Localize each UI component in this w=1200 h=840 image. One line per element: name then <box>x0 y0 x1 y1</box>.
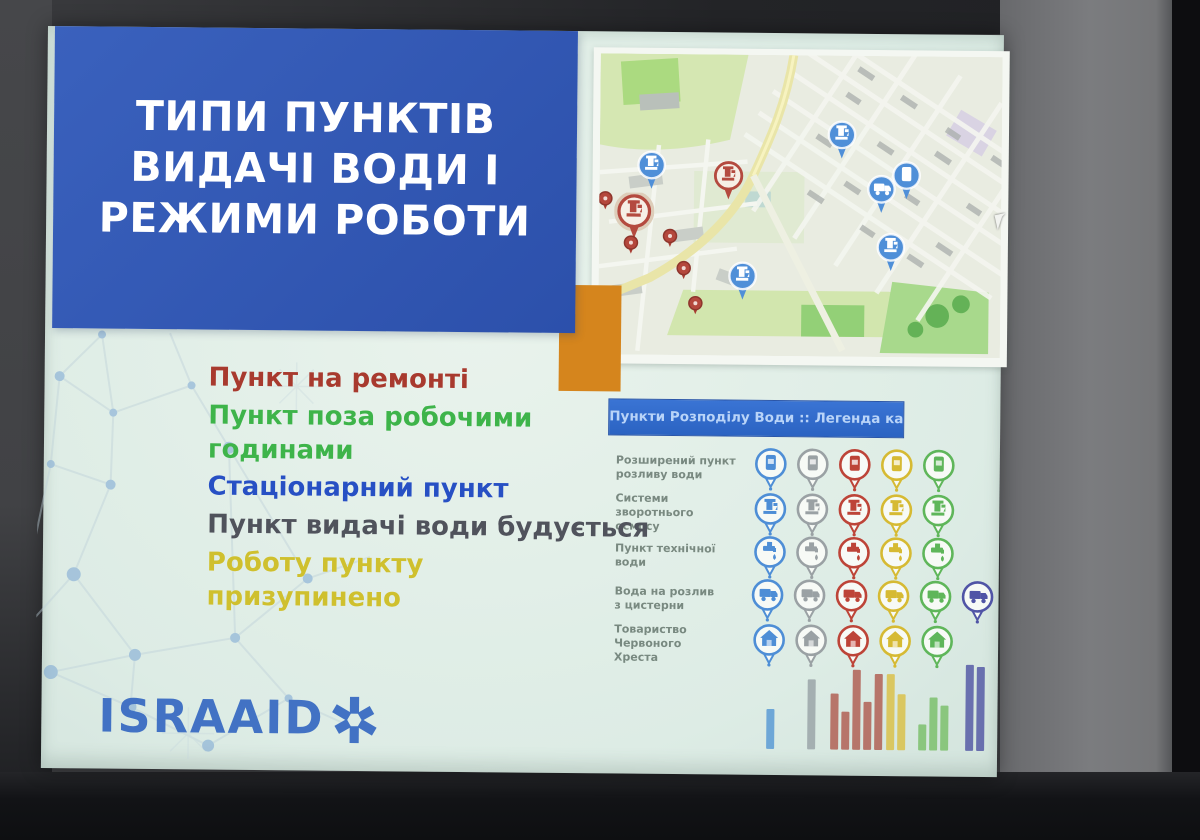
legend-pin-house <box>748 623 790 667</box>
bar <box>863 702 871 750</box>
legend-pin-tap <box>917 536 959 580</box>
legend-pin-house <box>790 623 832 667</box>
map-pin-dot <box>687 295 703 319</box>
status-item: Роботу пункту призупинено <box>206 547 563 618</box>
room-background-right <box>1000 0 1200 840</box>
slide-title: ТИПИ ПУНКТІВ ВИДАЧІ ВОДИ І РЕЖИМИ РОБОТИ <box>52 26 578 333</box>
legend-pin-tap <box>749 535 791 579</box>
map-pin-dot <box>662 228 678 252</box>
map-pin-pump <box>634 149 668 195</box>
bar <box>807 679 816 749</box>
room-background-right-dark-strip <box>1172 0 1200 840</box>
bar <box>897 694 906 750</box>
map-pin-dot <box>598 190 614 214</box>
bar <box>886 674 895 750</box>
map-pin-dot <box>623 235 639 259</box>
legend-pin-truck <box>914 579 956 623</box>
legend-row: Вода на розлив з цистерни <box>614 576 998 624</box>
legend-pin-dispenser <box>792 447 834 491</box>
status-list: Пункт на ремонтіПункт поза робочими годи… <box>206 362 564 622</box>
bar <box>766 709 774 749</box>
bar-group <box>807 679 816 749</box>
room-background-bottom <box>0 772 1200 840</box>
legend-header: Пункти Розподілу Води :: Легенда карти <box>608 398 904 438</box>
legend-pin-tap <box>875 536 917 580</box>
bar <box>918 724 926 750</box>
title-line-3: РЕЖИМИ РОБОТИ <box>53 192 576 248</box>
legend-pin-tap <box>833 536 875 580</box>
legend-rows: Розширений пункт розливу водиСистеми зво… <box>614 444 1000 670</box>
legend-pin-house <box>832 624 874 668</box>
status-item: Стаціонарний пункт <box>207 471 563 508</box>
map-streets-graphic <box>598 53 1003 358</box>
legend-row-label: Пункт технічної води <box>615 541 745 571</box>
legend-pin-dispenser <box>918 448 960 492</box>
legend-pin-dispenser <box>876 448 918 492</box>
legend-pin-pump <box>791 492 833 536</box>
legend-pin-truck <box>956 580 998 624</box>
legend-pin-pump <box>875 493 917 537</box>
legend-row: Товариство Червоного Хреста <box>614 620 998 670</box>
legend-pin-dispenser <box>750 447 792 491</box>
legend-pin-tap <box>791 535 833 579</box>
bar <box>976 667 985 751</box>
bar-group <box>886 674 906 750</box>
map-pin-pump <box>825 118 859 164</box>
bar-group <box>830 670 883 750</box>
israaid-logo-text: ISRAAID <box>98 689 325 745</box>
legend-pin-pump <box>917 493 959 537</box>
bar-group <box>965 665 985 751</box>
legend-pin-truck <box>830 579 872 623</box>
israaid-star-icon <box>328 694 380 746</box>
bar <box>874 674 883 750</box>
legend-pin-dispenser <box>834 448 876 492</box>
legend-pin-pump <box>749 492 791 536</box>
map-pin-truck <box>864 173 898 219</box>
status-item: Пункт поза робочими годинами <box>208 399 565 470</box>
legend-row: Розширений пункт розливу води <box>616 444 1000 494</box>
bar <box>841 712 849 750</box>
legend-pin-pump <box>833 493 875 537</box>
legend-row-label: Розширений пункт розливу води <box>616 453 746 483</box>
presentation-slide: ТИПИ ПУНКТІВ ВИДАЧІ ВОДИ І РЕЖИМИ РОБОТИ <box>41 26 1004 777</box>
photo-of-projected-slide: ТИПИ ПУНКТІВ ВИДАЧІ ВОДИ І РЕЖИМИ РОБОТИ <box>0 0 1200 840</box>
city-map <box>591 47 1010 367</box>
legend-row-label: Вода на розлив з цистерни <box>614 584 742 614</box>
legend-pin-house <box>874 624 916 668</box>
legend-row-label: Товариство Червоного Хреста <box>614 622 744 666</box>
bar <box>830 694 839 750</box>
map-pin-pump <box>725 260 759 306</box>
israaid-logo: ISRAAID <box>98 689 381 746</box>
bar-group <box>918 697 949 750</box>
map-pin-pump <box>711 159 745 205</box>
bar <box>940 706 948 751</box>
title-line-1: ТИПИ ПУНКТІВ <box>54 90 577 146</box>
status-item: Пункт на ремонті <box>208 362 564 399</box>
title-line-2: ВИДАЧІ ВОДИ І <box>53 141 576 197</box>
status-item: Пункт видачі води будується <box>207 509 563 546</box>
bar-group <box>766 709 774 749</box>
legend-row: Пункт технічної води <box>615 534 999 580</box>
legend-row: Системи зворотнього осмосу <box>615 490 999 538</box>
legend-pin-truck <box>788 578 830 622</box>
legend-pin-truck <box>746 578 788 622</box>
legend-pin-house <box>916 624 958 668</box>
legend-pin-truck <box>872 579 914 623</box>
bar <box>965 665 974 751</box>
map-pin-pump <box>874 231 908 277</box>
map-pin-dot <box>676 260 692 284</box>
bar <box>852 670 861 750</box>
bar <box>929 697 938 750</box>
